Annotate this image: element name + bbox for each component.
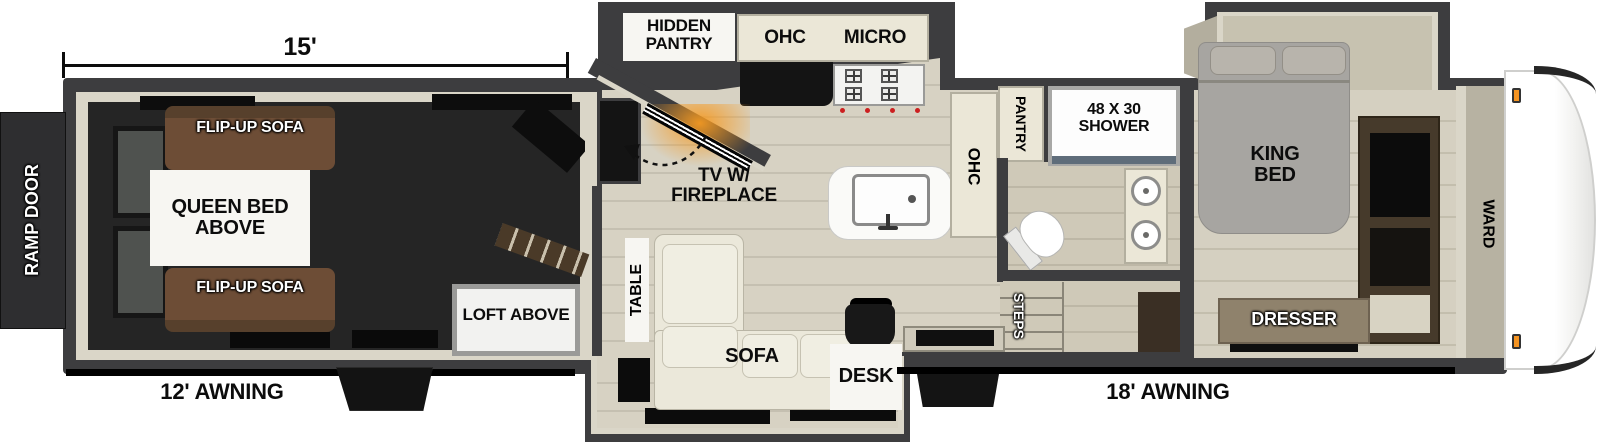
pantry-text: PANTRY: [1014, 96, 1028, 152]
living-left-lining: [585, 92, 597, 186]
flip-up-sofa-top: [165, 106, 335, 170]
table-label: TABLE: [625, 238, 649, 342]
slide-window-left: [618, 358, 650, 402]
clearance-light-top: [1512, 88, 1521, 103]
bedroom-left-wall: [1180, 78, 1194, 374]
slide-window-bottom-1: [645, 408, 770, 424]
bathroom-bottom-wall: [997, 270, 1188, 281]
stove-knob: [865, 108, 870, 113]
dimension-label: 15': [200, 34, 400, 60]
desk-mat: [916, 330, 994, 346]
queen-bed-label: QUEEN BED ABOVE: [160, 197, 300, 239]
shower-pan: [1052, 156, 1176, 164]
micro-label: MICRO: [830, 28, 920, 48]
flip-up-sofa-bottom: [165, 268, 335, 332]
awning-12-label: 12' AWNING: [122, 380, 322, 403]
dimension-line: [63, 64, 569, 67]
desk-label: DESK: [830, 366, 902, 387]
sink-drain: [908, 195, 916, 203]
dresser-label: DRESSER: [1218, 310, 1370, 329]
stove: [833, 64, 925, 106]
stove-burner-3: [845, 87, 862, 101]
sink-faucet-bar: [878, 226, 898, 230]
vanity-sink-2: [1131, 220, 1161, 250]
garage-window-bottom-1: [230, 332, 330, 348]
ramp-door-label: RAMP DOOR: [6, 140, 58, 300]
ohc-side-text: OHC: [966, 147, 983, 185]
bathroom-left-wall: [997, 158, 1008, 282]
hallway-half-wall: [1138, 292, 1182, 352]
wardrobe-opening: [1370, 228, 1430, 286]
stove-burner-2: [881, 69, 898, 83]
clearance-light-bottom: [1512, 334, 1521, 349]
wardrobe-shelf: [1370, 295, 1430, 333]
king-bed-label: KING BED: [1230, 144, 1320, 186]
front-cap-trim-bottom: [1534, 344, 1596, 374]
main-entry-step: [917, 374, 999, 407]
stove-knob: [890, 108, 895, 113]
ward-text: WARD: [1479, 200, 1495, 249]
bed-seam: [1198, 80, 1350, 83]
stove-knob: [915, 108, 920, 113]
bed-pillow-2: [1282, 46, 1346, 75]
ward-label: WARD: [1466, 188, 1508, 260]
awning-18-bar: [897, 367, 1455, 374]
vanity-sink-1: [1131, 176, 1161, 206]
hidden-pantry-label: HIDDEN PANTRY: [627, 17, 731, 53]
pantry-label: PANTRY: [1000, 88, 1042, 160]
ward-lining: [1456, 86, 1466, 358]
shower-label: 48 X 30 SHOWER: [1052, 102, 1176, 136]
kitchen-counter: [740, 62, 833, 106]
stove-knobs: [840, 108, 920, 113]
steps-label: STEPS: [1004, 284, 1034, 348]
steps-text: STEPS: [1012, 293, 1026, 339]
ramp-door-text: RAMP DOOR: [23, 164, 41, 276]
table-text: TABLE: [629, 264, 645, 316]
dimension-tick-right: [566, 52, 569, 78]
flip-up-sofa-bottom-label: FLIP-UP SOFA: [195, 280, 305, 297]
sofa-label: SOFA: [702, 346, 802, 367]
desk-chair: [845, 304, 895, 348]
garage-roof-vent-2: [432, 94, 572, 110]
bed-pillow-1: [1210, 46, 1276, 75]
stove-knob: [840, 108, 845, 113]
tv-fireplace-label: TV W/ FIREPLACE: [650, 166, 798, 206]
garage-entry-step: [336, 367, 433, 411]
flip-up-sofa-top-label: FLIP-UP SOFA: [195, 120, 305, 137]
sofa-cushion-1: [662, 244, 738, 324]
stove-burner-4: [881, 87, 898, 101]
awning-12-bar: [66, 369, 575, 376]
awning-18-label: 18' AWNING: [1068, 380, 1268, 403]
ohc-kitchen-label: OHC: [745, 28, 825, 48]
island-sink: [852, 174, 930, 226]
front-cap: [1504, 70, 1596, 370]
dimension-tick-left: [62, 52, 65, 78]
loft-above-label: LOFT ABOVE: [456, 306, 576, 324]
garage-window-bottom-2: [352, 330, 438, 348]
bedroom-tv: [1370, 133, 1430, 217]
ohc-side-label: OHC: [952, 130, 996, 202]
front-cap-trim-top: [1534, 66, 1596, 96]
stove-burner-1: [845, 69, 862, 83]
rv-floorplan: RAMP DOOR 15' FLIP-UP SOFA FLIP-UP SOFA …: [0, 0, 1600, 448]
